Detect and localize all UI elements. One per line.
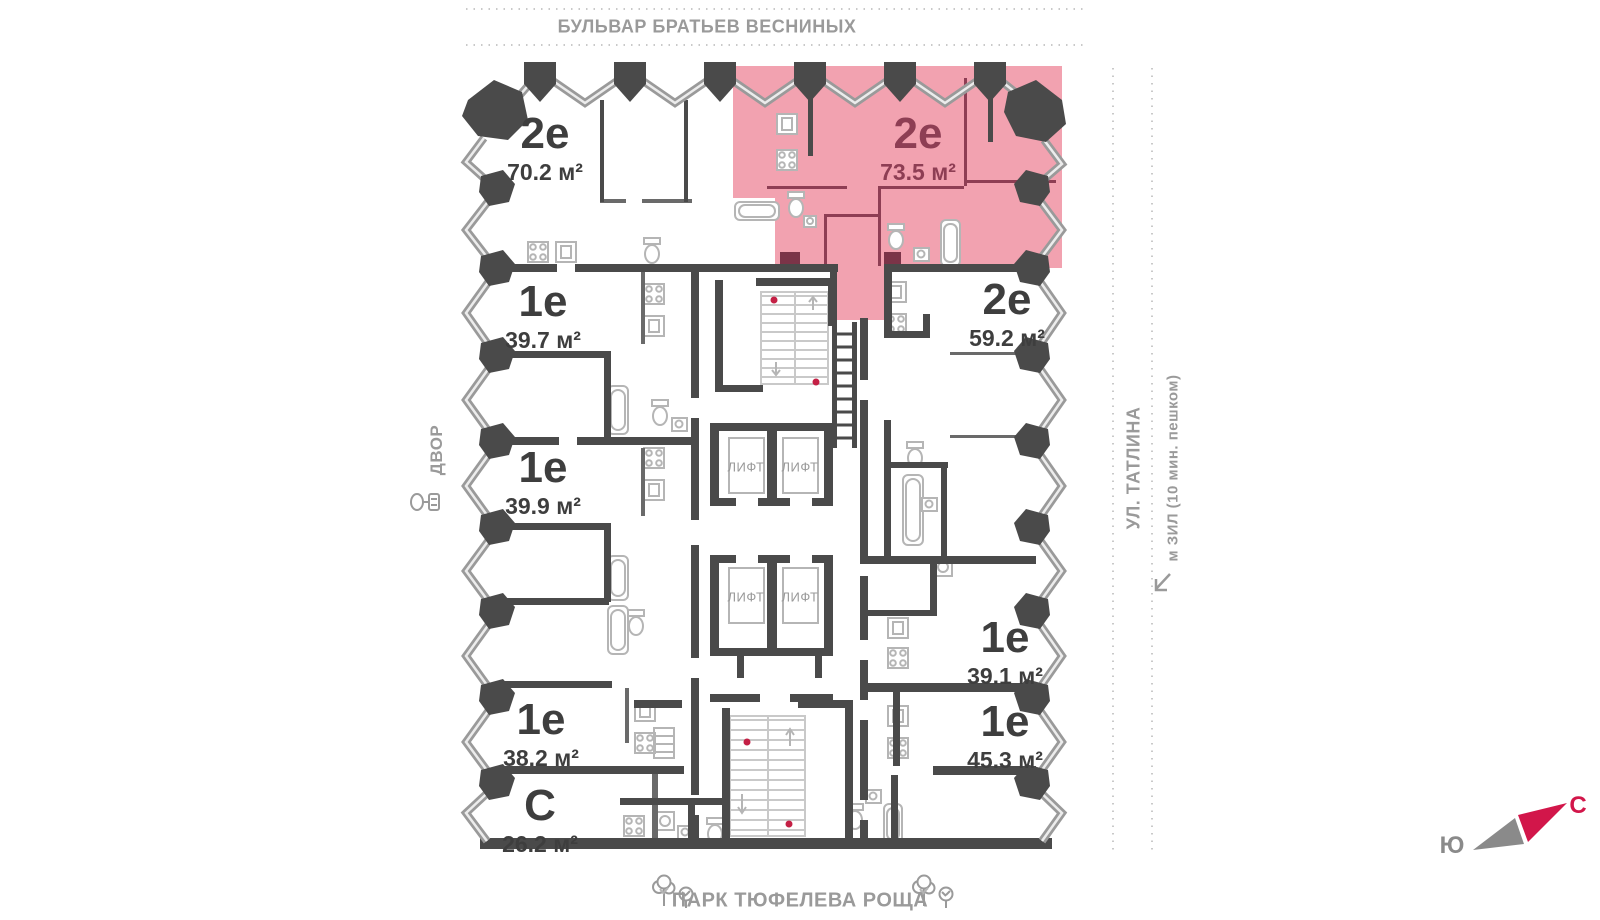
unit-type: 2е	[880, 112, 956, 156]
courtyard-label: ДВОР	[427, 425, 447, 476]
unit-area: 39.9 м²	[505, 493, 581, 520]
unit-area: 59.2 м²	[969, 325, 1045, 352]
elevator-label: ЛИФТ	[782, 460, 819, 475]
elevator-label: ЛИФТ	[782, 590, 819, 605]
unit-label-1e-39-7[interactable]: 1е 39.7 м²	[505, 280, 581, 354]
unit-area: 39.1 м²	[967, 663, 1043, 690]
park-label: ПАРК ТЮФЕЛЕВА РОЩА	[672, 890, 928, 913]
unit-area: 70.2 м²	[507, 159, 583, 186]
elevator-label: ЛИФТ	[728, 590, 765, 605]
metro-direction-arrow	[1156, 574, 1170, 590]
unit-area: 73.5 м²	[880, 159, 956, 186]
unit-type: 1е	[967, 616, 1043, 660]
floorplan-page: БУЛЬВАР БРАТЬЕВ ВЕСНИНЫХ УЛ. ТАТЛИНА м З…	[0, 0, 1600, 920]
unit-type: 1е	[967, 700, 1043, 744]
unit-area: 39.7 м²	[505, 327, 581, 354]
street-label-right: УЛ. ТАТЛИНА	[1124, 407, 1145, 530]
unit-type: 2е	[969, 278, 1045, 322]
unit-label-1e-39-1[interactable]: 1е 39.1 м²	[967, 616, 1043, 690]
staircase-bottom	[730, 716, 805, 836]
compass-south-label: Ю	[1440, 832, 1465, 860]
unit-label-2e-59-2[interactable]: 2е 59.2 м²	[969, 278, 1045, 352]
unit-label-2e-70-2[interactable]: 2е 70.2 м²	[507, 112, 583, 186]
unit-label-1e-39-9[interactable]: 1е 39.9 м²	[505, 446, 581, 520]
unit-type: 1е	[505, 446, 581, 490]
unit-label-s-26-2[interactable]: С 26.2 м²	[502, 784, 578, 858]
metro-label: м ЗИЛ (10 мин. пешком)	[1165, 375, 1182, 562]
unit-type: С	[502, 784, 578, 828]
compass-north-label: С	[1569, 792, 1586, 820]
unit-area: 38.2 м²	[503, 745, 579, 772]
courtyard-icon	[411, 494, 439, 510]
compass-needle	[1473, 803, 1567, 850]
staircase-top	[761, 292, 828, 384]
street-label-top: БУЛЬВАР БРАТЬЕВ ВЕСНИНЫХ	[558, 17, 857, 38]
unit-area: 45.3 м²	[967, 747, 1043, 774]
unit-type: 1е	[505, 280, 581, 324]
unit-area: 26.2 м²	[502, 831, 578, 858]
unit-type: 1е	[503, 698, 579, 742]
unit-type: 2е	[507, 112, 583, 156]
unit-label-1e-45-3[interactable]: 1е 45.3 м²	[967, 700, 1043, 774]
elevator-label: ЛИФТ	[728, 460, 765, 475]
unit-label-2e-73-5[interactable]: 2е 73.5 м²	[880, 112, 956, 186]
unit-label-1e-38-2[interactable]: 1е 38.2 м²	[503, 698, 579, 772]
